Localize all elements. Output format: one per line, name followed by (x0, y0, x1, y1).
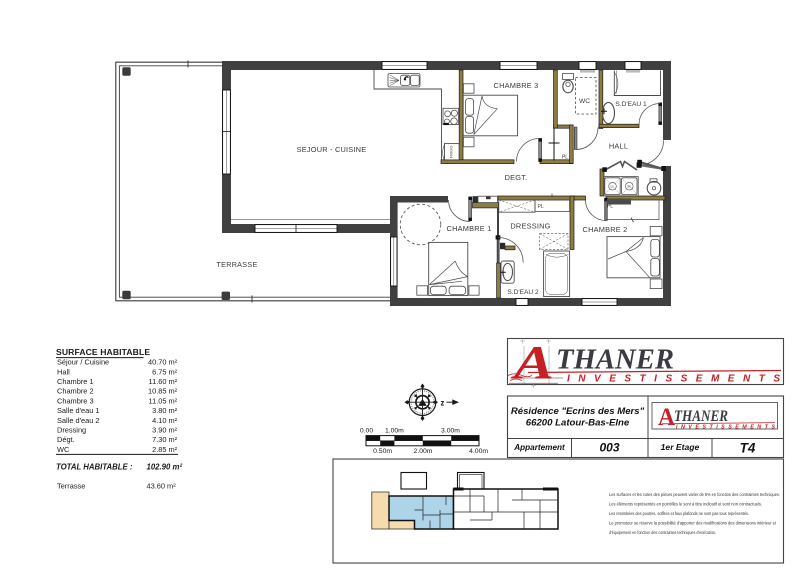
svg-text:3.90: 3.90 (152, 426, 166, 435)
svg-text:m²: m² (169, 406, 178, 415)
svg-text:TOTAL HABITABLE :: TOTAL HABITABLE : (56, 462, 133, 471)
svg-text:WC: WC (579, 98, 590, 105)
svg-text:m²: m² (169, 358, 178, 367)
svg-text:m²: m² (169, 445, 178, 454)
svg-text:DRESSING: DRESSING (510, 222, 550, 231)
svg-text:4.10: 4.10 (152, 416, 166, 425)
svg-text:m²: m² (169, 435, 178, 444)
svg-text:CHAMBRE 2: CHAMBRE 2 (583, 225, 628, 234)
svg-text:Dégt.: Dégt. (57, 435, 75, 444)
svg-text:Hall: Hall (57, 367, 70, 376)
svg-text:Appartement: Appartement (513, 443, 565, 452)
svg-text:43.60 m²: 43.60 m² (147, 481, 177, 490)
svg-text:Les surfaces et les cotes des: Les surfaces et les cotes des pièces peu… (609, 492, 780, 497)
svg-text:Dressing: Dressing (57, 426, 86, 435)
svg-text:A: A (658, 404, 675, 431)
svg-text:SURFACE HABITABLE: SURFACE HABITABLE (56, 347, 150, 357)
svg-text:Chambre 2: Chambre 2 (57, 387, 94, 396)
svg-text:DEGT.: DEGT. (505, 173, 528, 182)
svg-text:0.00: 0.00 (360, 427, 373, 434)
svg-text:003: 003 (599, 441, 619, 455)
svg-text:CHAMBRE 1: CHAMBRE 1 (447, 224, 492, 233)
svg-text:A: A (510, 337, 554, 390)
svg-text:102.90 m²: 102.90 m² (147, 462, 183, 471)
svg-text:Chambre 3: Chambre 3 (57, 396, 94, 405)
svg-text:S.D'EAU 1: S.D'EAU 1 (615, 101, 647, 108)
svg-text:1er Etage: 1er Etage (661, 442, 700, 452)
svg-text:PL: PL (562, 155, 568, 161)
svg-text:TERRASSE: TERRASSE (216, 260, 257, 269)
svg-text:m²: m² (169, 426, 178, 435)
svg-text:3.80: 3.80 (152, 406, 166, 415)
svg-text:S.D'EAU 2: S.D'EAU 2 (507, 289, 539, 296)
svg-text:4.00m: 4.00m (469, 448, 488, 455)
svg-text:11.05: 11.05 (149, 396, 167, 405)
svg-text:d'équipement en fonction des c: d'équipement en fonction des contraintes… (609, 530, 716, 535)
svg-text:2.85: 2.85 (152, 445, 166, 454)
svg-text:40.70: 40.70 (148, 358, 167, 367)
svg-text:THANER: THANER (556, 345, 674, 376)
svg-text:SL: SL (627, 185, 631, 189)
svg-text:THANER: THANER (674, 408, 728, 425)
svg-text:CHAMBRE 3: CHAMBRE 3 (494, 81, 539, 90)
svg-text:PL: PL (607, 204, 613, 210)
svg-text:Le promoteur se réserve la pos: Le promoteur se réserve la possibilité d… (609, 521, 777, 526)
svg-text:m²: m² (169, 367, 178, 376)
svg-text:2.00m: 2.00m (414, 448, 433, 455)
svg-text:Résidence "Ecrins des Mers": Résidence "Ecrins des Mers" (511, 406, 645, 417)
svg-text:11.60: 11.60 (149, 377, 167, 386)
svg-text:SEJOUR - CUISINE: SEJOUR - CUISINE (297, 145, 367, 154)
svg-text:Salle d'eau 1: Salle d'eau 1 (57, 406, 100, 415)
svg-text:1.00m: 1.00m (385, 427, 404, 434)
svg-text:Terrasse: Terrasse (57, 481, 85, 490)
svg-text:Séjour / Cuisine: Séjour / Cuisine (57, 358, 109, 367)
svg-text:m²: m² (169, 377, 178, 386)
svg-text:7.30: 7.30 (152, 435, 166, 444)
svg-text:10.85: 10.85 (148, 387, 167, 396)
svg-text:WC: WC (57, 445, 70, 454)
svg-text:Salle d'eau 2: Salle d'eau 2 (57, 416, 100, 425)
svg-text:PL: PL (537, 204, 543, 210)
svg-text:m²: m² (169, 396, 178, 405)
svg-text:0.50m: 0.50m (373, 448, 392, 455)
svg-text:T4: T4 (740, 441, 756, 456)
svg-text:Les retombées des poutres, sof: Les retombées des poutres, soffites et f… (609, 511, 749, 516)
svg-text:Chambre 1: Chambre 1 (57, 377, 94, 386)
svg-text:z: z (441, 398, 445, 407)
svg-text:3.00m: 3.00m (441, 427, 460, 434)
svg-text:m²: m² (169, 416, 178, 425)
svg-text:FRIGO: FRIGO (449, 146, 454, 159)
svg-text:LL: LL (611, 185, 615, 189)
svg-text:Les éléments représentés en po: Les éléments représentés en pointillés l… (609, 502, 762, 507)
svg-text:6.75: 6.75 (152, 367, 166, 376)
svg-text:66200 Latour-Bas-Elne: 66200 Latour-Bas-Elne (526, 418, 630, 429)
svg-text:m²: m² (169, 387, 178, 396)
svg-text:HALL: HALL (609, 142, 628, 151)
